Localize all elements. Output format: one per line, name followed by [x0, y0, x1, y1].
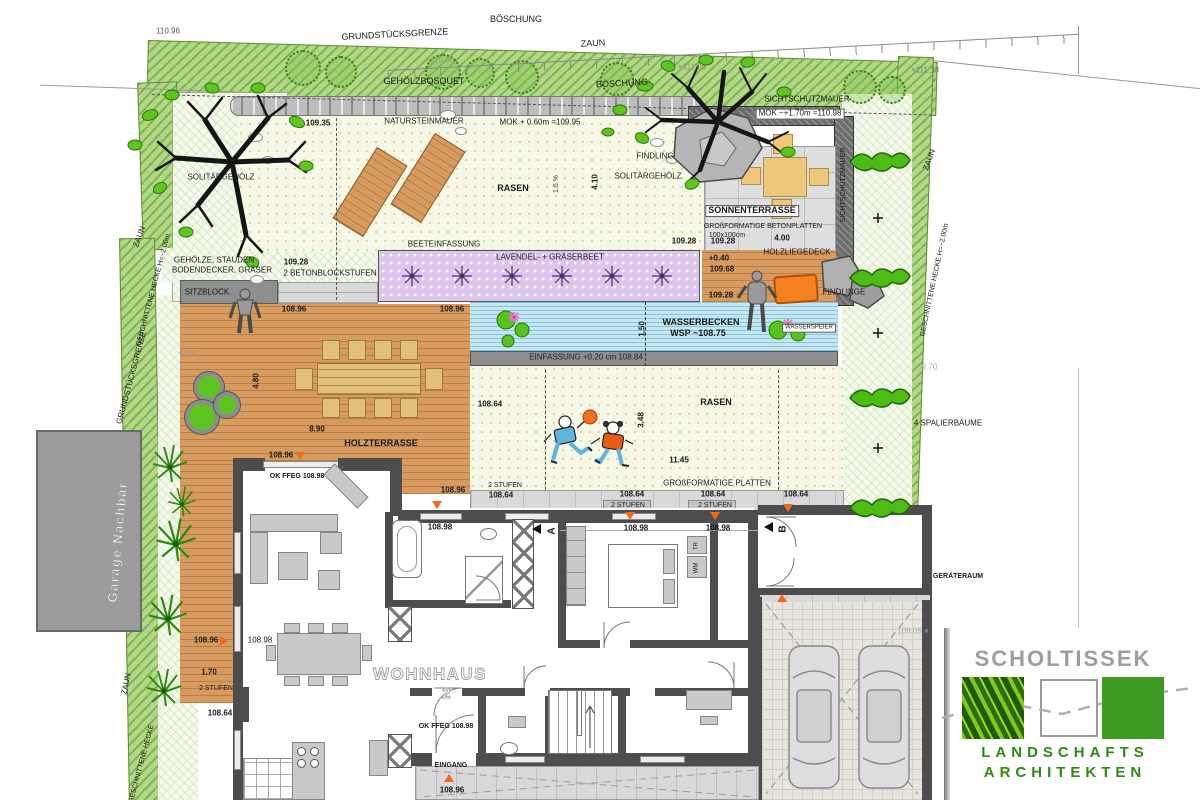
label-ok-ffeg-b: OK FFEG 108.98	[419, 723, 473, 731]
grass-icon	[156, 519, 195, 562]
espalier-tree-icon	[850, 499, 910, 517]
car-icon	[789, 646, 839, 788]
label-findlinge: FINDLINGE	[823, 289, 866, 298]
label-section-a: A	[547, 527, 558, 534]
label-hoehe-111-05: ×111.05	[678, 64, 706, 73]
label-hoehe-108-96-e: 108.96	[194, 637, 218, 646]
label-hoehe-108-64-c: 108.64	[620, 491, 644, 500]
label-rasen-lower: RASEN	[700, 398, 732, 408]
level-marker-icon	[777, 594, 787, 602]
label-hoehe-109-05: 109.05 ×	[897, 628, 928, 637]
ball-icon	[583, 410, 597, 424]
logo-square-green	[1102, 677, 1164, 739]
label-holzterrasse: HOLZTERRASSE	[344, 439, 418, 449]
label-wm: WM	[694, 563, 701, 574]
espalier-tree-icon	[850, 269, 910, 287]
label-wasserbecken: WASSERBECKEN	[662, 318, 739, 328]
logo-line2: ARCHITEKTEN	[984, 765, 1147, 782]
level-marker-icon	[444, 774, 454, 782]
label-dim-4-00: 4.00	[774, 235, 790, 244]
child-icon	[544, 416, 592, 463]
child-icon	[591, 422, 633, 467]
label-dim-4-80: 4.80	[253, 373, 262, 389]
label-hoehe-108-64-e: 108.64	[784, 491, 808, 500]
water-lily-icons	[497, 311, 805, 347]
label-hoehe-108-64-f: 108.64	[208, 710, 232, 719]
logo-line1: LANDSCHAFTS	[981, 745, 1149, 762]
label-hoehe-109-70: 109.70	[913, 364, 937, 373]
level-marker-icon	[220, 636, 228, 646]
level-marker-icon	[295, 452, 305, 460]
label-hoehe-108-98-b: 108.98	[624, 525, 648, 534]
section-marker	[764, 522, 773, 532]
label-findling: FINDLING	[636, 153, 673, 162]
label-hoehe-108-98-a: 108.98	[428, 524, 452, 533]
label-section-b: B	[778, 525, 789, 532]
label-dim-1-70: 1.70	[201, 669, 217, 678]
label-slope-15: 1.5 %	[553, 175, 561, 193]
lavender-tuft-icons	[402, 266, 672, 286]
label-hoehe-109-35: 109.35	[306, 120, 330, 129]
label-betonblockstufen: 2 BETONBLOCKSTUFEN	[283, 270, 376, 279]
label-plus-0-40: +0.40	[709, 255, 729, 264]
label-bodendecker: BODENDECKER, GRÄSER	[172, 267, 272, 276]
label-dim-9-94: 9.94	[179, 351, 195, 360]
label-sitzblock: SITZBLOCK	[185, 289, 229, 298]
label-zaun-top: ZAUN	[581, 38, 606, 49]
label-stufen-b: 2 STUFEN	[611, 502, 645, 510]
label-hoehe-110-96-mid: ×110.96	[426, 57, 455, 66]
label-solitaergehoelz-left: SOLITÄRGEHÖLZ	[187, 174, 254, 183]
level-marker-icon	[710, 512, 720, 520]
label-spalierbaeume: 4 SPALIERBÄUME	[914, 420, 982, 429]
label-natursteinmauer: NATURSTEINMAUER	[384, 118, 463, 127]
label-beeteinfassung: BEETEINFASSUNG	[408, 241, 480, 250]
person-icon	[230, 289, 260, 333]
level-marker-icon	[625, 512, 635, 520]
site-plan: SCHOLTISSEK LANDSCHAFTS ARCHITEKTEN BÖSC…	[0, 0, 1200, 800]
grass-icon	[168, 487, 195, 517]
label-hoehe-109-28-a: 109.28	[672, 238, 696, 247]
label-wasserspeier: WASSERSPEIER	[782, 324, 836, 333]
label-betonplatten: GROßFORMATIGE BETONPLATTEN	[704, 223, 822, 231]
label-hoehe-108-98-d: 108.98	[248, 637, 272, 646]
label-hoehe-110-96-left: 110.96	[156, 28, 180, 37]
logo-square-grass	[962, 677, 1024, 739]
label-dim-11-45: 11.45	[669, 457, 689, 466]
door-arcs	[434, 517, 796, 753]
car-icon	[859, 646, 909, 788]
label-dim-1-50: 1.50	[639, 321, 648, 337]
label-sonnenterrasse: SONNENTERRASSE	[705, 205, 799, 217]
grass-icon	[147, 669, 181, 706]
label-holzliegedeck: HOLZLIEGEDECK	[763, 249, 830, 258]
label-hoehe-108-96-a: 108.96	[282, 306, 306, 315]
level-marker-icon	[432, 501, 442, 509]
label-hoehe-108-96-f: 108.96	[440, 787, 464, 796]
label-stufen-c: 2 STUFEN	[698, 502, 732, 510]
label-grossformatige-platten: GROßFORMATIGE PLATTEN	[663, 480, 771, 489]
espalier-tree-icon	[850, 389, 910, 407]
label-wohnhaus: WOHNHAUS	[373, 666, 487, 685]
label-gehoelze-stauden: GEHÖLZE, STAUDEN	[174, 257, 254, 266]
label-mok-170: MOK ~+1.70m =110.98	[756, 109, 845, 120]
label-boeschung-top: BÖSCHUNG	[490, 15, 542, 25]
grass-icon	[149, 595, 186, 636]
label-hoehe-109-28-b: 109.28	[711, 238, 735, 247]
grass-icon	[153, 445, 187, 482]
label-dim-4-10: 4.10	[592, 174, 601, 190]
label-dim-3-48: 3.48	[638, 412, 647, 428]
section-marker	[532, 524, 541, 534]
label-solitaergehoelz-right: SOLITÄRGEHÖLZ	[614, 173, 681, 182]
label-stufen-a: 2 STUFEN	[488, 482, 522, 490]
label-sichtschutzmauer-top: SICHTSCHUTZMAUER	[764, 96, 849, 105]
level-marker-icon	[783, 504, 793, 512]
label-hoehe-109-68: 109.68	[710, 266, 734, 275]
person-icon	[738, 271, 776, 332]
label-gehoelzbosquet: GEHÖLZBOSQUET	[383, 77, 464, 87]
label-ok-ffeg-a: OK FFEG 108.98	[270, 473, 324, 481]
label-wsp: WSP ~108.75	[670, 329, 726, 339]
label-einfassung: EINFASSUNG +0.20 cm 108.84	[529, 354, 643, 363]
label-hoehe-108-98-c: 108.98	[706, 525, 730, 534]
label-lavendel: LAVENDEL- + GRÄSERBEET	[496, 254, 604, 263]
label-eingang: EINGANG	[435, 762, 468, 770]
label-hoehe-111-13: ×111.13	[911, 67, 939, 76]
label-hoehe-108-96-d: 108.96	[441, 487, 465, 496]
label-tr: TR	[694, 542, 701, 550]
label-geraeteraum: GERÄTERAUM	[933, 573, 983, 581]
tree-trunk-markers	[873, 213, 883, 453]
label-hoehe-108-64-a: 108.64	[478, 401, 502, 410]
label-wohnhaus-2: 2	[442, 686, 452, 703]
label-hoehe-108-96-b: 108.96	[440, 306, 464, 315]
label-hoehe-108-96-c: 108.96	[269, 452, 293, 461]
label-stufen-d: 2 STUFEN	[199, 685, 233, 693]
label-hoehe-108-64-b: 108.64	[489, 492, 513, 501]
label-hoehe-109-28-c: 109.28	[284, 259, 308, 268]
label-sichtschutzmauer-right: SICHTSCHUTZMAUER	[840, 148, 848, 223]
label-mok-060: MOK + 0.60m =109.95	[500, 119, 581, 128]
label-hoehe-108-64-d: 108.64	[701, 491, 725, 500]
court-diagonals	[420, 770, 754, 797]
label-dim-8-90: 8.90	[309, 426, 325, 435]
label-rasen-upper: RASEN	[497, 184, 529, 194]
espalier-tree-icon	[850, 153, 910, 171]
logo-title: SCHOLTISSEK	[975, 647, 1152, 671]
label-hoehe-109-28-d: 109.28	[709, 292, 733, 301]
stair-arrow-icon	[586, 706, 594, 748]
